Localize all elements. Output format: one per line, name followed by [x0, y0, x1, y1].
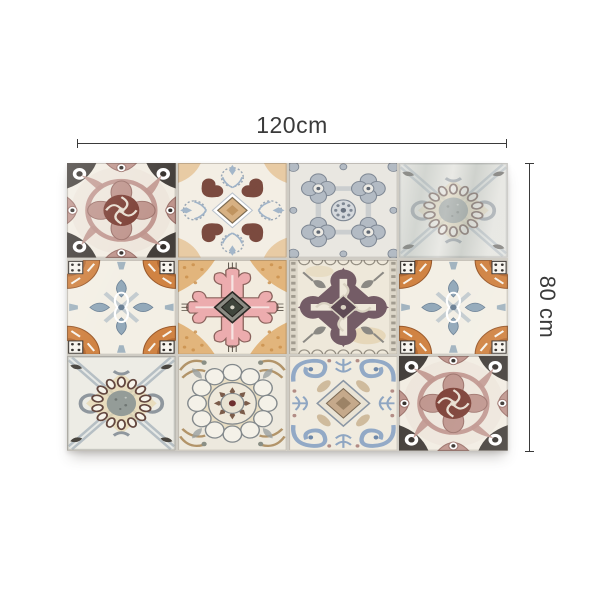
- tile-floral-hearts: [178, 163, 287, 258]
- tile-bead-ring: [399, 163, 508, 258]
- tile-fan-cross: [67, 260, 176, 355]
- width-dimension-line: [77, 143, 507, 144]
- svg-text:Ш: Ш: [273, 302, 285, 311]
- tile-mat: ШШШШ: [67, 163, 508, 451]
- tile-purple-damask: [289, 260, 398, 355]
- tile-fan-cross: [399, 260, 508, 355]
- tile-pink-baroque: ШШШШ: [178, 260, 287, 355]
- tile-mandala: [178, 356, 287, 451]
- svg-text:Ш: Ш: [227, 343, 237, 353]
- width-dimension-label: 120cm: [77, 112, 507, 139]
- tile-rosette: [67, 163, 176, 258]
- product-dimension-diagram: 120cm 80 cm ШШШШ: [0, 0, 600, 600]
- tile-bead-ring: [67, 356, 176, 451]
- tile-blue-scroll: [289, 356, 398, 451]
- svg-text:Ш: Ш: [180, 302, 192, 311]
- tile-rosette: [399, 356, 508, 451]
- svg-text:Ш: Ш: [227, 261, 237, 271]
- height-dimension-label: 80 cm: [533, 257, 561, 357]
- height-dimension-line: [529, 163, 530, 452]
- tile-quatrefoil: [289, 163, 398, 258]
